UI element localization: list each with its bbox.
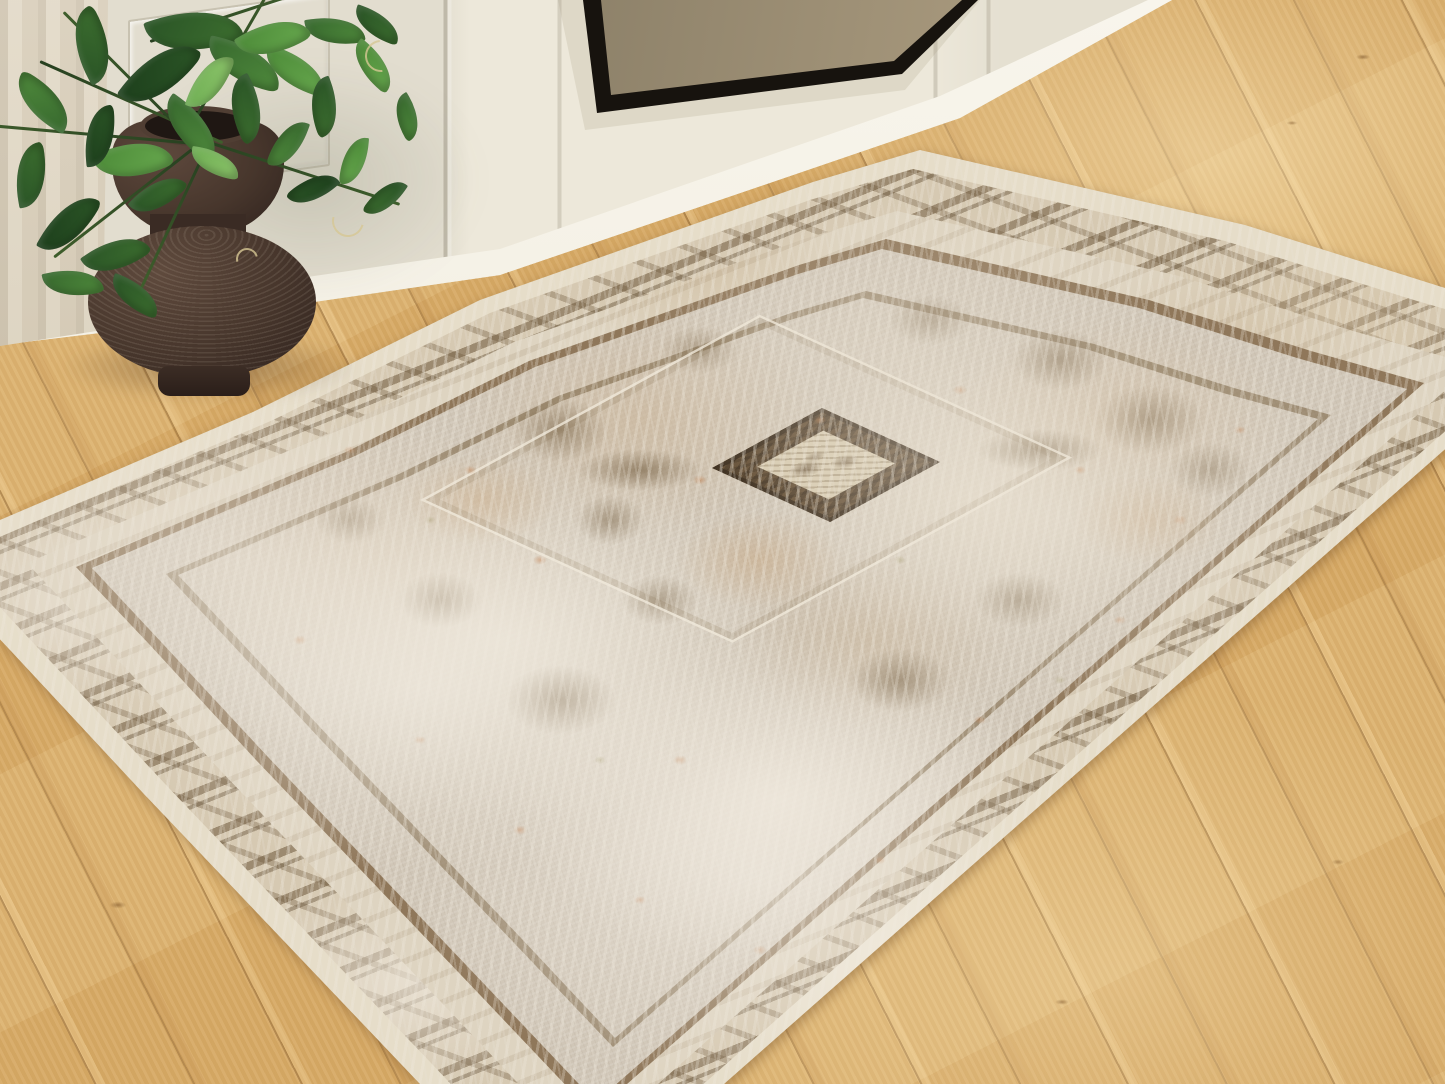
plant-leaf	[386, 92, 429, 142]
plant-leaf	[339, 136, 369, 186]
plant-leaf	[266, 115, 310, 173]
plant-leaf	[105, 273, 166, 319]
scene-root	[0, 0, 1445, 1084]
vase-foot	[158, 366, 250, 396]
plant-leaf	[362, 172, 408, 223]
pothos-plant	[0, 0, 460, 340]
plant-leaf	[5, 70, 80, 134]
plant-leaf	[9, 142, 53, 209]
plant-tendril	[232, 244, 262, 274]
